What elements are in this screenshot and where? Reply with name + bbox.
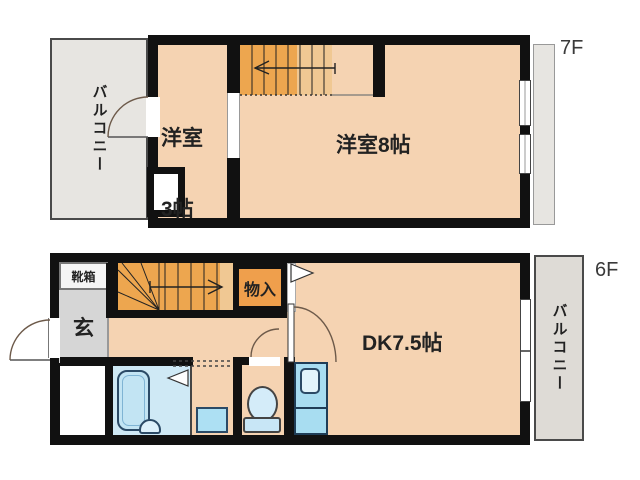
entrance-hall: 玄 [59,290,108,363]
window-6f-divider [521,350,530,352]
storage-room [60,366,105,435]
bathtub-inner-line [122,375,145,426]
floor-tag-7f: 7F [560,37,583,60]
floor-tag-6f: 6F [595,259,618,282]
side-strip-7f [533,44,555,225]
toilet-tank [243,417,281,433]
floor-plan-canvas: バルコニー バルコニー 靴箱 玄 物入 [0,0,640,480]
stair-wall-7f [373,45,385,97]
toilet-door-jamb [242,357,249,365]
balcony-7f-label: バルコニー [89,84,110,174]
window-6f [520,299,531,402]
unit-outline-7f [148,35,530,228]
balcony-6f: バルコニー [534,255,584,441]
western-room-3-line1: 洋室 [161,127,203,151]
western-room-8-label: 洋室8帖 [336,134,411,158]
storage-room-right-wall [105,366,113,435]
western-room-3-label: 洋室 3帖 [161,80,203,268]
entrance-step-line [107,315,109,363]
stairs-landing-6f [220,263,233,310]
bathroom-right-wall [190,366,192,435]
entrance-label: 玄 [73,312,94,342]
balcony-door-opening-7f [146,97,160,137]
room-divider-wall-top-7f [227,45,240,93]
stairs-6f [118,263,233,310]
balcony-6f-label: バルコニー [549,303,570,393]
shoe-box-label: 靴箱 [71,268,95,285]
toilet-door-opening [249,357,280,366]
closet-door-track [287,263,296,312]
kitchen-counter-divider [294,407,328,409]
room-divider-wall-bottom-7f [227,158,240,218]
bath-basin [139,419,161,434]
shoe-box: 靴箱 [59,262,108,290]
entrance-door-arc [10,320,50,360]
sliding-door-7f [227,93,240,158]
storage-closet-label: 物入 [244,276,276,300]
sanitary-top-wall [60,357,193,366]
window-7f-upper [519,80,531,126]
washroom-toilet-wall [233,357,242,445]
stair-left-wall-6f [106,263,118,315]
vanity-unit [196,407,228,433]
stairs-landing-7f [297,45,332,95]
kitchen-sink [300,368,320,394]
balcony-7f: バルコニー [50,38,148,220]
window-7f-lower [519,134,531,174]
entrance-door-opening [48,318,60,358]
storage-closet: 物入 [233,263,287,312]
dk-label: DK7.5帖 [362,332,443,356]
western-room-3-line2: 3帖 [161,198,203,222]
